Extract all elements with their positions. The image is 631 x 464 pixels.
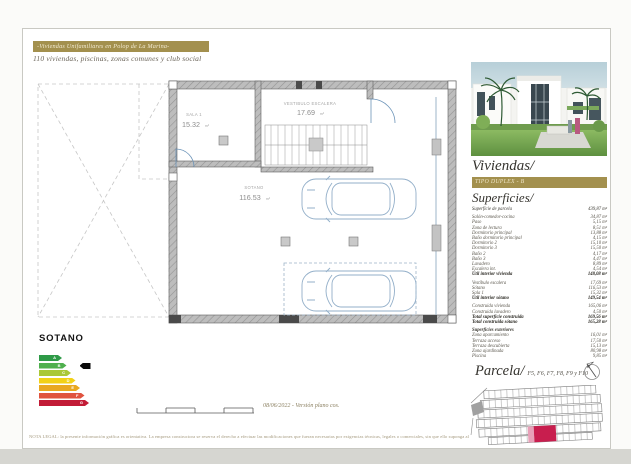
row-value: 439,87 m² — [588, 207, 607, 212]
floor-plan: SALA 1 15.32 m² VESTIBULO ESCALERA 17.69… — [33, 79, 473, 331]
parcela-title: Parcela/ — [475, 363, 524, 380]
energy-bar: G — [39, 400, 89, 406]
version-note: 08/06/2022 - Versión plano cos. — [263, 403, 340, 409]
scale-bar — [136, 403, 258, 415]
svg-text:m²: m² — [266, 197, 271, 201]
energy-marker-icon — [80, 363, 91, 370]
building-walls — [169, 81, 456, 323]
render-image — [471, 62, 607, 156]
row-label: Útil interior sótano — [472, 296, 509, 301]
row-label: Total construida sótano — [472, 320, 517, 325]
floor-name-label: SOTANO — [39, 333, 84, 344]
window-line — [432, 97, 441, 315]
project-subtitle: 110 viviendas, piscinas, zonas comunes y… — [33, 54, 201, 63]
room-label-sotano: SOTANO 116.53 m² — [239, 185, 271, 202]
excavation-area — [38, 84, 169, 317]
north-arrow-icon — [579, 357, 605, 383]
page-bottom-band — [0, 449, 631, 464]
car-icon — [302, 268, 416, 314]
energy-bar: D — [39, 378, 76, 384]
svg-text:17.69: 17.69 — [297, 108, 315, 117]
svg-text:m²: m² — [320, 112, 325, 116]
row-value: 149,54 m² — [588, 296, 607, 301]
svg-text:116.53: 116.53 — [239, 193, 260, 202]
superficies-table: Superficie de parcela439,87 m²Salón-come… — [472, 207, 607, 359]
site-plan — [469, 385, 609, 445]
svg-text:VESTIBULO ESCALERA: VESTIBULO ESCALERA — [284, 101, 336, 106]
sidebar-title: Viviendas/ — [472, 158, 534, 175]
row-label: Piscina — [472, 354, 486, 359]
car-icon — [302, 176, 416, 222]
wall-caps — [169, 81, 437, 323]
page: { "header": { "banner": "-Viviendas Unif… — [0, 0, 631, 464]
svg-text:SALA 1: SALA 1 — [186, 112, 202, 117]
row-label: Útil interior vivienda — [472, 272, 512, 277]
svg-text:SOTANO: SOTANO — [244, 185, 264, 190]
parcela-heading: Parcela/ F5, F6, F7, F8, F9 y F10 — [475, 363, 588, 380]
energy-bar: C — [39, 370, 71, 376]
row-value: 148,08 m² — [588, 272, 607, 277]
plot-highlight-light — [528, 426, 535, 442]
type-banner: TIPO DUPLEX - B — [472, 177, 607, 188]
project-title-banner: -Viviendas Unifamiliares en Polop de La … — [33, 41, 209, 52]
wall-joints — [169, 81, 456, 323]
superficies-title: Superficies/ — [472, 190, 533, 206]
energy-bar: B — [39, 363, 67, 369]
energy-bar: E — [39, 385, 80, 391]
room-label-sala1: SALA 1 15.32 m² — [182, 112, 210, 129]
svg-text:m²: m² — [205, 124, 210, 128]
plot-highlight — [534, 425, 557, 442]
room-label-vestibulo: VESTIBULO ESCALERA 17.69 m² — [284, 101, 336, 117]
energy-bar: F — [39, 393, 85, 399]
svg-text:15.32: 15.32 — [182, 120, 200, 129]
plan-sheet: -Viviendas Unifamiliares en Polop de La … — [22, 28, 611, 449]
staircase — [265, 125, 367, 165]
row-label: Superficie de parcela — [472, 207, 512, 212]
row-value: 165,28 m² — [588, 320, 607, 325]
energy-bar: A — [39, 355, 62, 361]
column-marker — [219, 136, 358, 246]
